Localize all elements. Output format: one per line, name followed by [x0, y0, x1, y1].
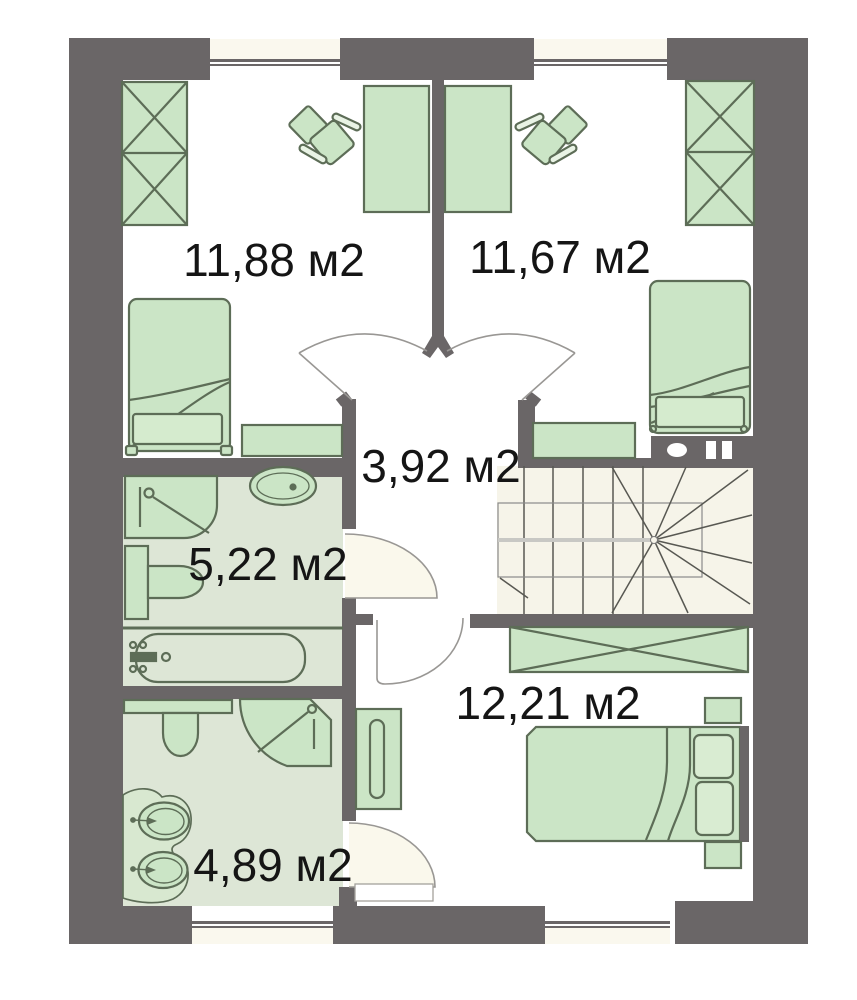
svg-text:12,21 м2: 12,21 м2 [455, 677, 640, 729]
svg-text:4,89 м2: 4,89 м2 [193, 839, 353, 891]
svg-text:3,92 м2: 3,92 м2 [361, 440, 521, 492]
svg-text:5,22 м2: 5,22 м2 [188, 538, 348, 590]
svg-text:11,67 м2: 11,67 м2 [469, 231, 651, 283]
svg-text:11,88 м2: 11,88 м2 [183, 234, 365, 286]
